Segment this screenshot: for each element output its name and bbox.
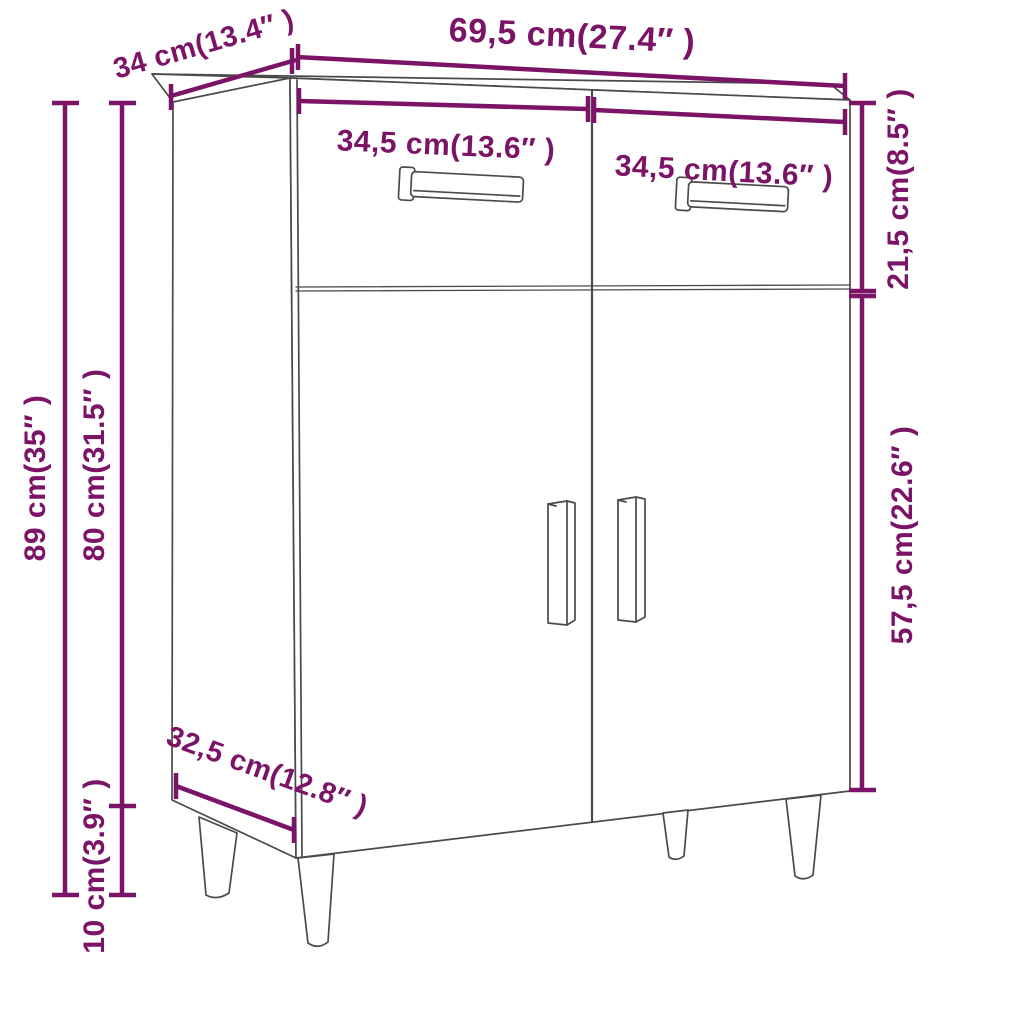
leg-back-right: [663, 810, 688, 859]
furniture-dimension-diagram: 69,5 cm(27.4″ ) 34 cm(13.4″ ) 34,5 cm(13…: [0, 0, 1024, 1024]
dim-label-leg-height: 10 cm(3.9″ ): [80, 778, 110, 953]
leg-back-left: [199, 817, 237, 898]
dim-label-total-height: 89 cm(35″ ): [21, 395, 51, 562]
dim-label-drawer-section-height: 21,5 cm(8.5″ ): [884, 88, 914, 289]
door-handle-left: [548, 501, 575, 625]
dim-line-door-section-height: [849, 296, 876, 790]
leg-front-left: [298, 854, 334, 946]
dim-line-body-height: [109, 103, 136, 895]
dim-line-total-height: [52, 103, 79, 895]
dim-line-drawer-section-height: [849, 103, 876, 291]
door-handle-right: [618, 497, 645, 622]
leg-front-right: [786, 795, 821, 879]
dim-label-body-height: 80 cm(31.5″ ): [80, 369, 110, 562]
dim-label-door-section-height: 57,5 cm(22.6″ ): [888, 426, 918, 645]
